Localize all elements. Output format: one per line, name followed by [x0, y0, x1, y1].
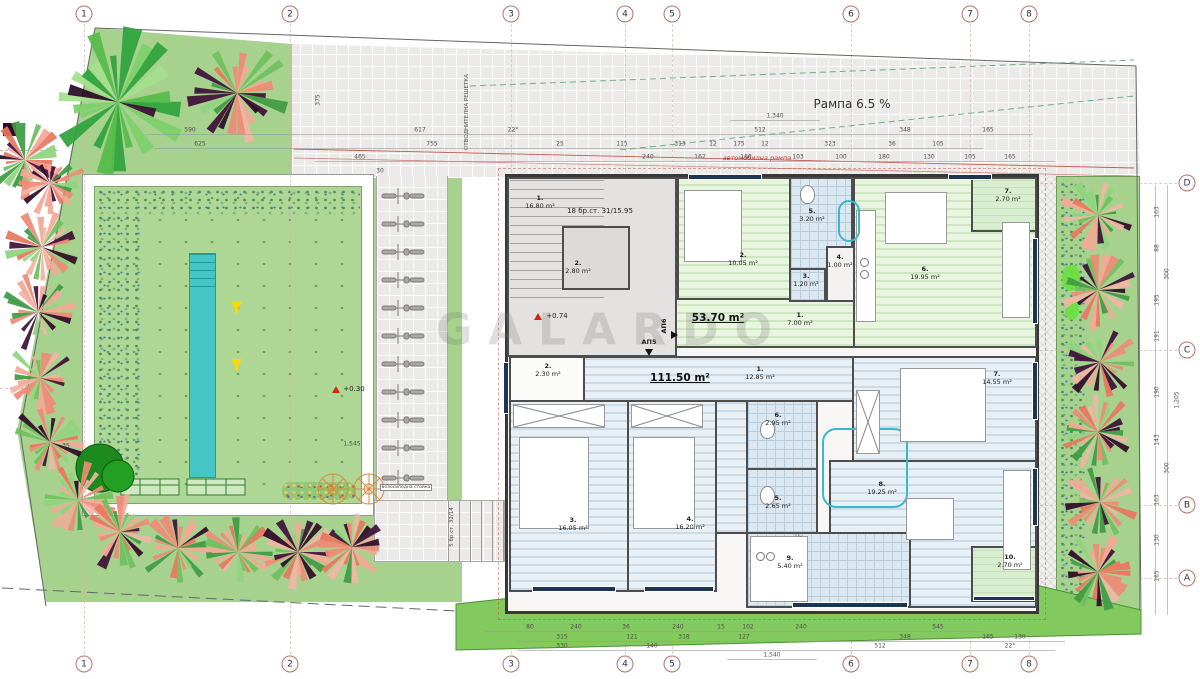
- dimension-label: 1,340: [766, 113, 783, 120]
- ts-label: ТС: [794, 531, 802, 538]
- bicycle-icon: [382, 328, 424, 344]
- grid-marker: 1: [76, 6, 93, 23]
- fan-tree-icon: [89, 494, 152, 570]
- dimension-label: 103: [792, 154, 803, 161]
- fan-tree-icon: [318, 514, 381, 584]
- dimension-label: 617: [414, 127, 425, 134]
- dimension-label: 240: [570, 624, 581, 631]
- orange-tree-icon: [318, 474, 348, 504]
- dimension-label: 240: [795, 624, 806, 631]
- dimension-label: 130: [923, 154, 934, 161]
- dimension-label: 191: [1154, 330, 1161, 341]
- fan-tree-icon: [1060, 182, 1132, 251]
- dimension-label: 300: [1164, 268, 1171, 279]
- grid-marker: 2: [282, 6, 299, 23]
- dimension-label: 36: [622, 624, 630, 631]
- level-garden-marker: [332, 386, 340, 393]
- fan-tree-icon: [263, 519, 332, 589]
- room-label: 5.2.65 m²: [765, 495, 790, 511]
- dimension-label: 143: [1154, 434, 1161, 445]
- dimension-label: 240: [672, 624, 683, 631]
- ap5-entry-code: АП5: [642, 338, 657, 346]
- dimension-label: 348: [899, 634, 910, 641]
- grid-marker: 1: [76, 656, 93, 673]
- bicycle-icon: [382, 272, 424, 288]
- room-label: 1.12.85 m²: [745, 366, 775, 382]
- ap5-total-area: 111.50 m²: [650, 372, 710, 384]
- dimension-label: 375: [315, 94, 322, 105]
- fan-tree-icon: [145, 515, 218, 583]
- dimension-label: 545: [932, 624, 943, 631]
- dimension-label: 323: [824, 141, 835, 148]
- ap6-entry-arrow: [671, 331, 678, 339]
- fan-tree-icon: [1062, 254, 1135, 331]
- grid-marker: 4: [617, 656, 634, 673]
- dimension-label: 465: [354, 154, 365, 161]
- bench-icon: [187, 479, 245, 495]
- room-label: 1.7.00 m²: [787, 312, 812, 328]
- bicycle-icon: [382, 356, 424, 372]
- site-plan-drawing: GALARDO Рампа 6.5 % автомобилна рампа ОТ…: [0, 0, 1200, 679]
- dimension-label: 1,205: [1174, 391, 1181, 408]
- dimension-label: 15: [717, 624, 725, 631]
- dimension-label: 195: [1154, 294, 1161, 305]
- dimension-line: [155, 148, 983, 149]
- grid-marker: B: [1179, 497, 1196, 514]
- dimension-line: [1167, 185, 1168, 615]
- dimension-label: 140: [646, 643, 657, 650]
- drain-grate-label: ОТВОДНИТЕЛНА РЕШЕТКА: [464, 74, 470, 150]
- bicycle-icon: [382, 384, 424, 400]
- dimension-label: 175: [733, 141, 744, 148]
- dimension-label: 1,540: [763, 652, 780, 659]
- grid-marker: 5: [664, 656, 681, 673]
- fan-tree-icon: [3, 274, 76, 351]
- dimension-label: 121: [626, 634, 637, 641]
- ap6-entry-code: АП6: [660, 319, 668, 334]
- dimension-label: 103: [1154, 494, 1161, 505]
- dimension-line: [145, 134, 1033, 135]
- dimension-label: 80: [526, 624, 534, 631]
- dimension-line: [727, 659, 817, 660]
- dimension-line: [517, 641, 1065, 642]
- fan-tree-icon: [1064, 394, 1130, 467]
- fan-tree-icon: [1068, 535, 1131, 611]
- grid-marker: 6: [843, 656, 860, 673]
- dimension-label: 330: [556, 643, 567, 650]
- room-label: 3.16.05 m²: [558, 517, 588, 533]
- room-label: 3.1.20 m²: [793, 273, 818, 289]
- dimension-label: 105: [964, 154, 975, 161]
- dimension-label: 240: [642, 154, 653, 161]
- grid-marker: 8: [1021, 6, 1038, 23]
- room-label: 6.19.95 m²: [910, 266, 940, 282]
- grid-marker: 2: [282, 656, 299, 673]
- dimension-label: 130: [1154, 534, 1161, 545]
- dimension-label: 105: [932, 141, 943, 148]
- dimension-label: 165: [982, 634, 993, 641]
- dimension-label: 22°: [508, 127, 519, 134]
- room-label: 10.2.70 m²: [997, 554, 1022, 570]
- bicycle-icon: [382, 188, 424, 204]
- grid-marker: 7: [962, 6, 979, 23]
- bicycle-icon: [382, 300, 424, 316]
- dimension-label: 590: [184, 127, 195, 134]
- ap6-total-area: 53.70 m²: [692, 312, 744, 324]
- dimension-label: 100: [835, 154, 846, 161]
- dimension-label: 1,545: [343, 441, 360, 448]
- room-label: 4.1.00 m²: [827, 254, 852, 270]
- dimension-label: 190: [1154, 386, 1161, 397]
- grid-marker: D: [1179, 175, 1196, 192]
- dimension-label: 160: [740, 154, 751, 161]
- dimension-label: 512: [754, 127, 765, 134]
- dimension-label: 30: [376, 168, 384, 175]
- dimension-label: 36: [888, 141, 896, 148]
- bicycle-icon: [382, 440, 424, 456]
- dimension-label: 313: [674, 141, 685, 148]
- dimension-line: [315, 161, 1055, 162]
- dimension-label: 165: [1004, 154, 1015, 161]
- dimension-label: 162: [694, 154, 705, 161]
- fan-tree-icon: [205, 517, 273, 583]
- grid-marker: 6: [843, 6, 860, 23]
- dimension-label: 180: [878, 154, 889, 161]
- room-label: 7.2.70 m²: [995, 188, 1020, 204]
- grid-marker: 3: [503, 6, 520, 23]
- room-label: 1.16.80 m²: [525, 195, 555, 211]
- dimension-label: 12: [709, 141, 717, 148]
- dimension-label: 165: [1154, 570, 1161, 581]
- fan-tree-icon: [187, 50, 288, 143]
- room-label: 8.19.25 m²: [867, 481, 897, 497]
- dimension-label: 25: [556, 141, 564, 148]
- dimension-label: 130: [1014, 634, 1025, 641]
- dimension-label: 115: [616, 141, 627, 148]
- grid-marker: 7: [962, 656, 979, 673]
- level-entry-marker: [534, 313, 542, 320]
- dimension-label: 625: [194, 141, 205, 148]
- room-label: 2.2.80 m²: [565, 260, 590, 276]
- bicycle-icon: [382, 216, 424, 232]
- room-label: 9.5.40 m²: [777, 555, 802, 571]
- bicycle-icon: [382, 244, 424, 260]
- dimension-line: [517, 650, 1055, 651]
- dimension-label: 88: [1154, 244, 1161, 252]
- level-entry: +0.74: [546, 312, 567, 320]
- dimension-label: 300: [1164, 462, 1171, 473]
- dimension-label: 318: [678, 634, 689, 641]
- bicycle-icon: [382, 412, 424, 428]
- room-label: 2.2.30 m²: [535, 363, 560, 379]
- dimension-label: 103: [1154, 206, 1161, 217]
- dimension-label: 512: [874, 643, 885, 650]
- dimension-label: 315: [556, 634, 567, 641]
- fan-tree-icon: [59, 26, 183, 175]
- stairs-ext-label: 5 бр.ст. 32/14: [449, 507, 455, 546]
- room-label: 5.3.20 m²: [799, 208, 824, 224]
- dimension-label: 165: [982, 127, 993, 134]
- fan-tree-icon: [1065, 468, 1137, 536]
- grid-marker: 8: [1021, 656, 1038, 673]
- room-label: 4.16.20 m²: [675, 516, 705, 532]
- dimension-label: 12: [761, 141, 769, 148]
- ramp-label: Рампа 6.5 %: [814, 97, 891, 111]
- room-label: 6.2.95 m²: [765, 412, 790, 428]
- dimension-line: [485, 631, 983, 632]
- level-garden: +0.30: [343, 385, 364, 393]
- grid-marker: 5: [664, 6, 681, 23]
- dimension-label: 102: [742, 624, 753, 631]
- dimension-line: [730, 120, 820, 121]
- fan-tree-icon: [1067, 330, 1134, 397]
- grid-marker: A: [1179, 570, 1196, 587]
- room-label: 2.10.05 m²: [728, 252, 758, 268]
- grid-marker: C: [1179, 342, 1196, 359]
- bike-rack-label: велосипедна стойка: [380, 484, 432, 491]
- dimension-label: 22°: [1005, 643, 1016, 650]
- building-line: [498, 168, 1046, 620]
- dimension-label: 755: [426, 141, 437, 148]
- ap5-entry-arrow: [645, 349, 653, 356]
- dimension-label: 348: [899, 127, 910, 134]
- stairs-main-label: 18 бр.ст. 31/15.95: [567, 207, 633, 215]
- grid-marker: 3: [503, 656, 520, 673]
- grid-marker: 4: [617, 6, 634, 23]
- fan-tree-icon: [9, 351, 70, 415]
- dimension-label: 35: [62, 443, 70, 450]
- dimension-label: 127: [738, 634, 749, 641]
- fan-tree-icon: [5, 212, 78, 281]
- room-label: 7.14.55 m²: [982, 371, 1012, 387]
